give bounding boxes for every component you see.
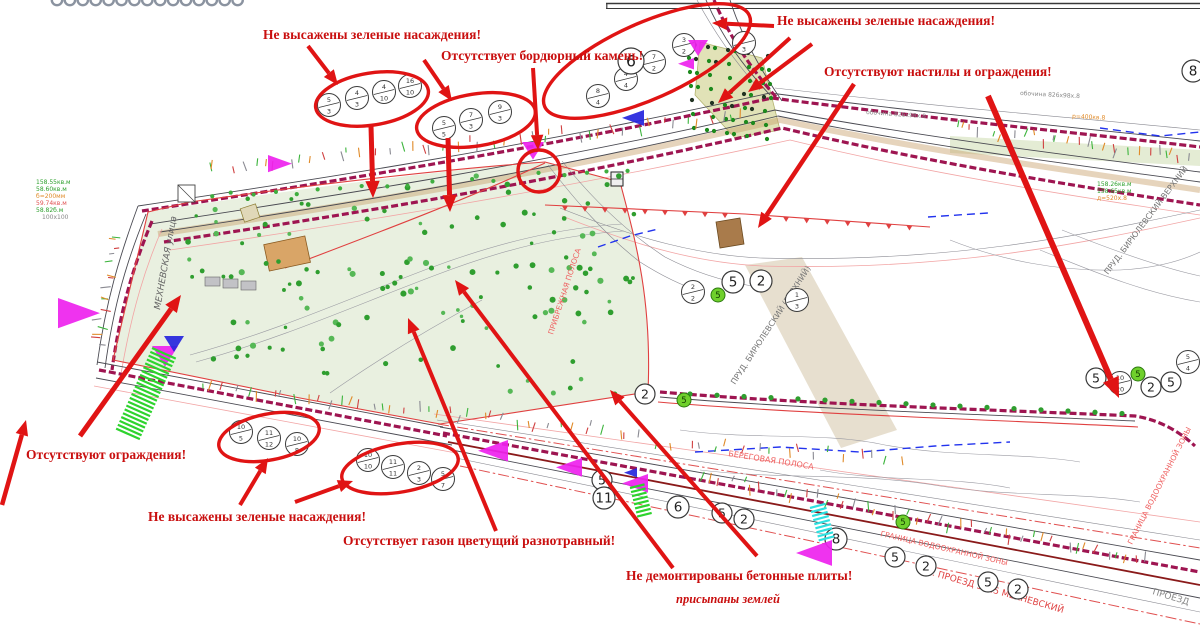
survey-tick [1145, 551, 1146, 561]
tree-dot [491, 179, 495, 183]
tree-dot [300, 202, 304, 206]
svg-text:4: 4 [624, 82, 628, 90]
tree-dot [747, 65, 751, 69]
svg-text:5: 5 [1092, 370, 1100, 385]
survey-tick [827, 446, 828, 452]
tree-dot [532, 314, 537, 319]
tree-dot [741, 394, 746, 399]
svg-text:2: 2 [682, 48, 686, 56]
survey-tick [1033, 531, 1034, 537]
survey-tick [1083, 542, 1085, 548]
tree-dot [760, 67, 764, 71]
tree-dot [405, 183, 409, 187]
svg-text:3: 3 [498, 115, 502, 123]
tree-dot [1065, 408, 1070, 413]
label-slabs: Не демонтированы бетонные плиты! [626, 568, 852, 584]
fence-tick [845, 221, 851, 226]
survey-tick [420, 401, 421, 412]
svg-text:2: 2 [641, 386, 649, 401]
map-text: 158.26кв.м [1097, 181, 1132, 188]
map-text: 58.60кв.м [36, 186, 67, 193]
tree-dot [712, 129, 716, 133]
scallop-border [181, 0, 191, 5]
survey-tick [561, 125, 562, 134]
sheet-number-marker: 2 [635, 384, 655, 404]
svg-text:7: 7 [469, 111, 473, 119]
tree-dot [316, 187, 320, 191]
tree-dot [590, 231, 596, 237]
tree-dot [385, 184, 389, 188]
tree-dot [605, 182, 610, 187]
tree-dot [765, 137, 769, 141]
svg-text:7: 7 [441, 482, 445, 490]
tree-dot [551, 391, 556, 396]
svg-text:3: 3 [469, 123, 473, 131]
survey-tick [590, 420, 591, 426]
tree-dot [392, 280, 397, 285]
map-text: 100х100 [42, 214, 69, 221]
survey-tick [382, 403, 383, 410]
fence-tick [662, 210, 668, 215]
tree-dot [562, 198, 567, 203]
planting-symbol: 73 [460, 109, 483, 132]
tree-dot [730, 104, 734, 108]
tree-dot [608, 300, 612, 304]
fence-tick [824, 220, 830, 225]
survey-tick [1160, 145, 1161, 155]
tree-dot [584, 290, 589, 295]
survey-tick [597, 129, 598, 138]
fence-tick [722, 213, 728, 218]
tree-dot [399, 275, 403, 279]
tree-dot [250, 343, 256, 349]
tree-dot [295, 192, 299, 196]
survey-tick [109, 253, 114, 254]
tree-dot [194, 214, 197, 217]
green-number-marker: 5 [896, 515, 910, 529]
tree-dot [530, 262, 536, 268]
tree-dot [742, 92, 746, 96]
tree-dot [407, 256, 412, 261]
sheet-number-marker: 5 [1086, 368, 1106, 388]
tree-dot [231, 319, 237, 325]
tree-dot [849, 399, 854, 404]
utility-block [241, 281, 256, 290]
planting-symbol: 93 [489, 101, 512, 124]
utility-block [223, 279, 238, 288]
planting-symbol: 84 [587, 85, 610, 108]
tree-dot [568, 386, 573, 391]
survey-tick [233, 166, 235, 173]
tree-dot [696, 85, 700, 89]
fence-tick [906, 226, 912, 231]
tree-dot [380, 286, 385, 291]
planting-symbol: 23 [408, 462, 431, 485]
tree-dot [583, 270, 589, 276]
survey-tick [673, 120, 674, 129]
tree-dot [579, 377, 584, 382]
tree-dot [728, 76, 732, 80]
map-text: ПРОЕЗД [1151, 587, 1190, 608]
survey-tick [532, 422, 535, 431]
svg-text:11: 11 [389, 470, 397, 478]
green-number-marker: 5 [1131, 367, 1145, 381]
tree-dot [689, 84, 693, 88]
survey-tick [638, 429, 639, 437]
tree-dot [383, 361, 388, 366]
survey-tick [796, 444, 798, 452]
tree-dot [187, 257, 191, 261]
tree-dot [329, 336, 335, 342]
tree-dot [543, 310, 548, 315]
tree-dot [450, 345, 456, 351]
tree-dot [338, 186, 342, 190]
tree-dot [732, 132, 736, 136]
map-text: обочина 826х98х.8 [1020, 90, 1080, 100]
survey-tick [1070, 543, 1071, 553]
survey-tick [717, 478, 718, 486]
tree-dot [522, 210, 528, 216]
planting-symbol: 55 [433, 117, 456, 140]
survey-tick [99, 344, 105, 345]
tree-dot [575, 311, 581, 317]
sheet-number-marker: 5 [885, 547, 905, 567]
survey-tick [105, 261, 113, 262]
scallop-border [91, 0, 101, 5]
annotation-arrow [2, 420, 28, 505]
sheet-number-marker: 5 [1161, 372, 1181, 392]
tree-dot [709, 87, 713, 91]
tree-dot [419, 222, 423, 226]
tree-dot [287, 232, 291, 236]
tree-dot [713, 46, 717, 50]
tree-dot [822, 397, 827, 402]
tree-dot [768, 395, 773, 400]
tree-dot [418, 357, 423, 362]
tree-dot [190, 275, 194, 279]
tree-dot [236, 346, 242, 352]
survey-tick [249, 387, 252, 396]
site-plan-viewport: МЕХНЕВСКАЯ улицаПРУД. БИРЮЛЕВСКИЙ (ВЕРХН… [0, 0, 1200, 634]
survey-tick [547, 423, 549, 428]
annotation-arrow [240, 458, 268, 505]
magenta-triangle-marker [678, 58, 694, 70]
planting-symbol: 43 [346, 87, 369, 110]
svg-text:2: 2 [417, 464, 421, 472]
tree-dot [632, 212, 637, 217]
tree-dot [234, 354, 239, 359]
tree-dot [441, 311, 445, 315]
svg-text:2: 2 [740, 511, 748, 526]
survey-tick [962, 122, 964, 128]
tree-dot [360, 184, 364, 188]
tree-dot [281, 348, 285, 352]
tree-dot [299, 296, 304, 301]
tree-dot [316, 270, 320, 274]
tree-dot [690, 98, 694, 102]
svg-text:5: 5 [239, 435, 243, 443]
survey-tick [790, 449, 791, 458]
tree-dot [284, 326, 287, 329]
survey-tick [745, 477, 747, 482]
survey-tick [390, 148, 391, 154]
svg-text:8: 8 [596, 87, 600, 95]
planting-symbol: 22 [682, 281, 705, 304]
tree-dot [592, 251, 597, 256]
tree-dot [210, 194, 214, 198]
svg-text:5: 5 [715, 291, 720, 301]
svg-text:11: 11 [265, 429, 273, 437]
fence-tick [783, 217, 789, 222]
tree-dot [530, 242, 534, 246]
tree-dot [743, 106, 747, 110]
survey-tick [817, 489, 818, 498]
survey-tick [862, 449, 863, 459]
tree-dot [304, 267, 308, 271]
survey-tick [1041, 532, 1043, 541]
svg-text:5: 5 [891, 549, 899, 564]
tree-dot [423, 260, 429, 266]
svg-text:6: 6 [674, 500, 683, 516]
svg-text:11: 11 [595, 491, 612, 507]
planting-symbol: 53 [318, 94, 341, 117]
tree-dot [1119, 411, 1124, 416]
tree-dot [586, 201, 591, 206]
tree-dot [751, 121, 755, 125]
svg-text:2: 2 [652, 65, 656, 73]
tree-dot [500, 222, 506, 228]
svg-text:5: 5 [327, 96, 331, 104]
tree-dot [1011, 406, 1016, 411]
tree-dot [213, 231, 218, 236]
scallop-border [220, 0, 230, 5]
tree-dot [288, 282, 292, 286]
tree-dot [767, 68, 771, 72]
survey-tick [114, 248, 119, 249]
tree-dot [608, 310, 614, 316]
tree-dot [748, 79, 752, 83]
scallop-border [142, 0, 152, 5]
tree-dot [276, 259, 281, 264]
tree-dot [604, 169, 608, 173]
map-text: 58.82б.м [36, 207, 63, 214]
svg-text:5: 5 [1186, 353, 1190, 361]
planting-symbol: 13 [786, 289, 809, 312]
tree-dot [707, 59, 711, 63]
tree-dot [550, 297, 556, 303]
survey-tick [749, 485, 750, 496]
map-text: БЕРЕГОВАЯ ПОЛОСА [728, 449, 815, 471]
tree-dot [245, 320, 250, 325]
svg-text:4: 4 [382, 83, 386, 91]
tree-dot [903, 401, 908, 406]
survey-tick [299, 155, 300, 163]
tree-dot [245, 197, 249, 201]
tree-dot [562, 173, 566, 177]
svg-text:8: 8 [832, 532, 841, 548]
survey-tick [664, 117, 665, 122]
svg-text:4: 4 [1186, 365, 1190, 373]
tree-dot [485, 326, 489, 330]
tree-dot [296, 280, 302, 286]
tree-dot [264, 261, 269, 266]
svg-text:10: 10 [406, 89, 414, 97]
survey-tick [92, 319, 101, 320]
survey-tick [1067, 136, 1069, 143]
svg-text:2: 2 [757, 274, 766, 290]
survey-tick [784, 490, 786, 497]
tree-dot [245, 354, 249, 358]
planting-symbol: 72 [643, 51, 666, 74]
green-verge [950, 136, 1200, 166]
tree-dot [214, 220, 218, 224]
fence-tick [865, 223, 871, 228]
tree-dot [528, 285, 533, 290]
survey-tick [902, 456, 903, 465]
survey-tick [109, 238, 116, 239]
survey-tick [322, 152, 324, 159]
tree-dot [582, 320, 587, 325]
tree-dot [429, 266, 434, 271]
tree-dot [688, 70, 692, 74]
tree-dot [723, 103, 727, 107]
green-number-marker: 5 [677, 393, 691, 407]
tree-dot [450, 224, 454, 228]
svg-text:2: 2 [691, 295, 695, 303]
tree-dot [984, 405, 989, 410]
tree-dot [532, 212, 536, 216]
label-slabs-note: присыпаны землей [676, 592, 780, 607]
tree-dot [185, 239, 191, 245]
survey-tick [428, 145, 429, 155]
svg-text:8: 8 [1189, 64, 1198, 80]
tree-dot [795, 396, 800, 401]
tree-dot [347, 267, 351, 271]
svg-text:10: 10 [364, 463, 372, 471]
tree-dot [1092, 410, 1097, 415]
deck-structure [716, 218, 744, 248]
svg-text:2: 2 [922, 558, 930, 573]
svg-text:3: 3 [355, 101, 359, 109]
tree-dot [705, 128, 709, 132]
tree-dot [470, 177, 474, 181]
tree-dot [257, 233, 261, 237]
tree-dot [213, 207, 218, 212]
tree-dot [768, 82, 772, 86]
svg-text:4: 4 [596, 99, 600, 107]
svg-text:2: 2 [1014, 581, 1022, 596]
tree-dot [268, 346, 272, 350]
tree-dot [597, 278, 603, 284]
tree-dot [727, 62, 731, 66]
tree-dot [505, 182, 511, 188]
fence-tick [682, 211, 688, 216]
sheet-number-marker: 6 [667, 496, 689, 518]
sheet-number-marker: 2 [916, 556, 936, 576]
tree-dot [400, 291, 406, 297]
tree-dot [496, 364, 500, 368]
tree-dot [456, 308, 460, 312]
tree-dot [536, 171, 540, 175]
map-text: 158.65кв.м [1097, 188, 1132, 195]
tree-dot [322, 371, 326, 375]
tree-dot [691, 112, 695, 116]
scallop-border [65, 0, 75, 5]
scallop-border [78, 0, 88, 5]
scallop-border [103, 0, 113, 5]
tree-dot [573, 285, 578, 290]
tree-dot [585, 171, 589, 175]
tree-dot [415, 287, 418, 290]
sheet-number-marker: 2 [1141, 377, 1161, 397]
svg-text:5: 5 [729, 275, 738, 291]
fence-tick [804, 218, 810, 223]
scallop-border [52, 0, 62, 5]
tree-dot [385, 285, 389, 289]
survey-tick [958, 120, 959, 127]
survey-tick [341, 151, 344, 161]
svg-text:5: 5 [442, 131, 446, 139]
survey-tick [601, 425, 604, 435]
tree-dot [580, 233, 586, 239]
tree-dot [282, 288, 286, 292]
map-text: р=400кв.8 [1072, 113, 1106, 122]
fence-tick [702, 212, 708, 217]
survey-tick [884, 456, 886, 464]
tree-dot [289, 197, 293, 201]
planting-symbol: 1112 [258, 427, 281, 450]
tree-dot [769, 96, 773, 100]
map-text: д=520х.8 [1097, 195, 1127, 202]
tree-dot [240, 241, 244, 245]
tree-dot [229, 190, 233, 194]
survey-tick [208, 381, 211, 391]
tree-dot [211, 356, 216, 361]
utility-block [205, 277, 220, 286]
survey-tick [1024, 128, 1028, 136]
survey-tick [1034, 130, 1035, 136]
svg-text:5: 5 [681, 396, 686, 406]
label-green-3: Не высажены зеленые насаждения! [148, 509, 366, 525]
tree-dot [749, 93, 753, 97]
tree-dot [552, 230, 556, 234]
svg-text:7: 7 [652, 53, 656, 61]
tree-dot [744, 120, 748, 124]
sheet-number-marker: 8 [1182, 60, 1200, 82]
tree-dot [694, 57, 698, 61]
svg-text:3: 3 [682, 36, 686, 44]
tree-dot [447, 265, 450, 268]
scallop-border [116, 0, 126, 5]
survey-tick [758, 481, 759, 490]
survey-tick [359, 148, 360, 157]
tree-dot [764, 123, 768, 127]
tree-dot [562, 216, 567, 221]
label-green-2: Не высажены зеленые насаждения! [777, 13, 995, 29]
tree-dot [745, 134, 749, 138]
tree-dot [631, 276, 635, 280]
svg-text:3: 3 [417, 476, 421, 484]
scallop-border [232, 0, 242, 5]
survey-tick [108, 277, 113, 278]
tree-dot [430, 179, 434, 183]
tree-dot [725, 131, 729, 135]
label-curb: Отсутствует бордюрный камень! [441, 48, 643, 64]
survey-tick [243, 162, 246, 171]
planting-symbol: 105 [230, 421, 253, 444]
tree-dot [350, 271, 356, 277]
tree-dot [957, 404, 962, 409]
